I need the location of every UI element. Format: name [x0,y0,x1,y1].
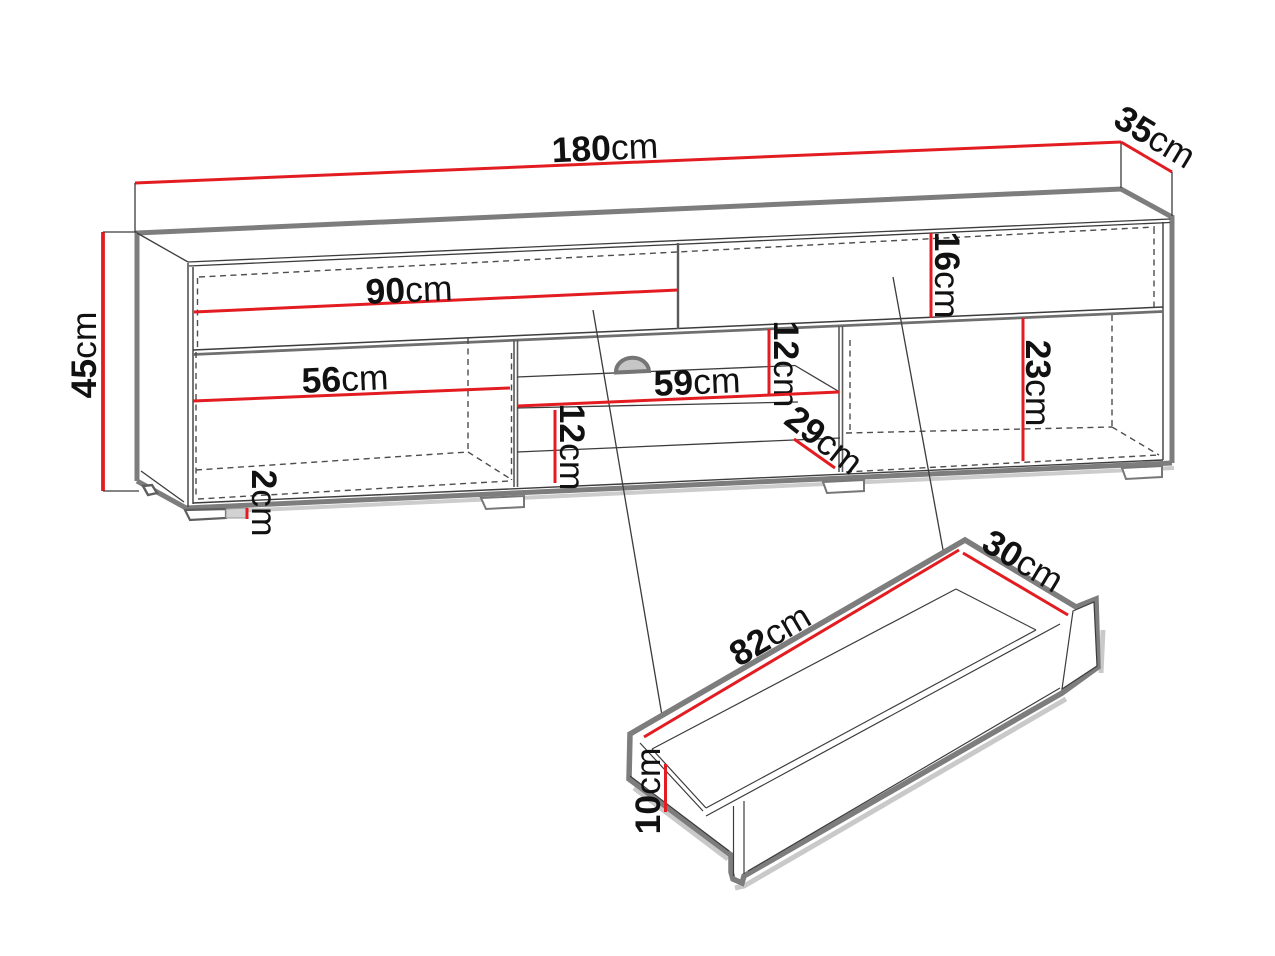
svg-text:10cm: 10cm [628,748,668,835]
svg-text:16cm: 16cm [927,232,967,319]
svg-text:180cm: 180cm [551,126,659,171]
svg-text:90cm: 90cm [365,268,453,312]
svg-text:2cm: 2cm [244,469,284,536]
svg-text:56cm: 56cm [301,357,389,401]
svg-text:45cm: 45cm [64,312,104,399]
svg-text:12cm: 12cm [552,404,592,491]
svg-text:59cm: 59cm [653,360,741,404]
svg-text:23cm: 23cm [1018,340,1058,427]
